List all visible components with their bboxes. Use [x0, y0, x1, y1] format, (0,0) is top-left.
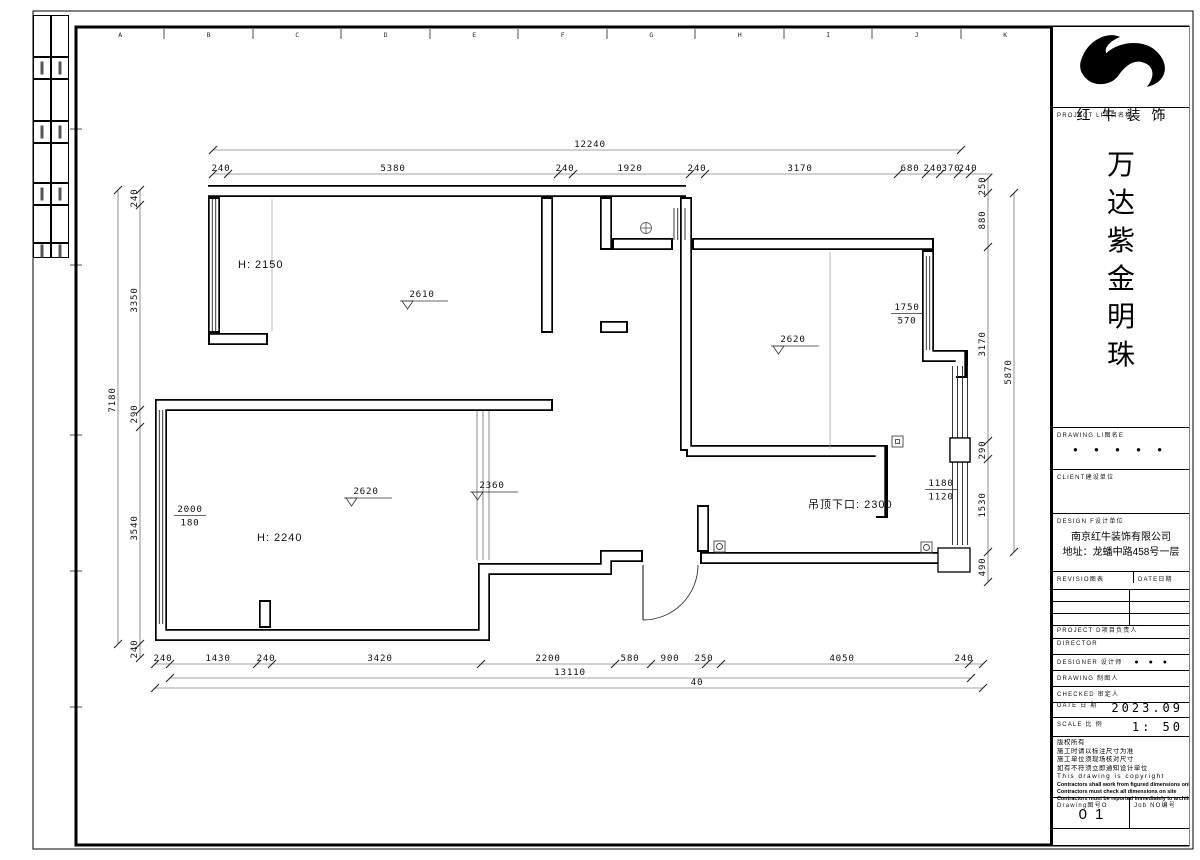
drawing-list-dots: ● ● ● ● ●	[1053, 445, 1189, 454]
elevation-triangle-icon	[346, 498, 357, 506]
elevation-value: 2620	[353, 486, 378, 497]
dim-label: 240	[924, 163, 943, 174]
designer-row: DESIGNER 设计师 ● ● ●	[1053, 655, 1189, 671]
dim-label: 2200	[535, 653, 560, 664]
project-label: PROJECT LI项目名称	[1053, 108, 1189, 119]
dim-label: 3350	[129, 287, 140, 312]
director-row: DIRECTOR	[1053, 639, 1189, 655]
dim-label: 240	[129, 189, 140, 208]
dim-label: 240	[955, 653, 974, 664]
dim-label: 240	[129, 640, 140, 659]
design-firm-section: DESIGN F设计单位 南京红牛装饰有限公司 地址：龙蟠中路458号一层	[1053, 514, 1189, 572]
plan-annotations: 1224024053802401920240317068024037024071…	[107, 31, 1018, 692]
ceiling-lamp-icon	[641, 223, 652, 234]
design-firm-address: 地址：龙蟠中路458号一层	[1053, 545, 1189, 560]
dim-label: 240	[212, 163, 231, 174]
dim-label: 5380	[380, 163, 405, 174]
elevation-triangle-icon	[402, 301, 413, 309]
elevation-triangle-icon	[472, 492, 483, 500]
dim-label: 240	[154, 653, 173, 664]
scale-value: 1: 50	[1132, 720, 1183, 734]
elevation-value: 2620	[780, 334, 805, 345]
border-letter: J	[915, 31, 919, 39]
project-director-row: PROJECT D项目负责人	[1053, 623, 1189, 639]
border-letter: E	[472, 31, 476, 39]
border-letter: F	[561, 31, 565, 39]
dim-label: 250	[977, 177, 988, 196]
client-section: CLIENT建设单位	[1053, 470, 1189, 514]
drawing-by-row: DRAWING 制图人	[1053, 671, 1189, 687]
job-no-label: Job NO编号	[1130, 798, 1189, 809]
room-label: H: 2150	[238, 259, 284, 271]
dim-label: 3170	[787, 163, 812, 174]
sheet-borders	[33, 11, 1193, 849]
border-letter: C	[295, 31, 299, 39]
border-letter: D	[384, 31, 388, 39]
wall-corner-block	[938, 548, 970, 572]
drawing-number-section: Drawing图号O 01 Job NO编号	[1053, 798, 1189, 829]
border-letter: G	[649, 31, 653, 39]
border-letter: I	[826, 31, 830, 39]
drawing-no-value: 01	[1053, 806, 1129, 823]
dim-label: 880	[977, 211, 988, 230]
logo-section: 红牛装饰	[1053, 27, 1189, 108]
project-title-section: 万 达 紫 金 明 珠	[1053, 128, 1189, 428]
border-letter: H	[738, 31, 742, 39]
title-block: 红牛装饰 PROJECT LI项目名称 万 达 紫 金 明 珠 DRAWING …	[1050, 27, 1189, 845]
dim-label: 240	[556, 163, 575, 174]
dim-label: 490	[977, 558, 988, 577]
dim-label: 13110	[554, 667, 586, 678]
dim-label: 3540	[129, 515, 140, 540]
border-letter: K	[1003, 31, 1007, 39]
drawing-list-section: DRAWING LI图名E ● ● ● ● ●	[1053, 428, 1189, 470]
dim-label: 3170	[977, 331, 988, 356]
dim-label: 5870	[1003, 359, 1014, 384]
dim-label: 680	[901, 163, 920, 174]
revision-label: REVISIO图表	[1053, 572, 1134, 583]
window-mullion-block-top	[950, 438, 970, 462]
floor-plan-canvas: 1224024053802401920240317068024037024071…	[0, 0, 1200, 860]
scale-row: SCALE 比 例 1: 50	[1053, 717, 1189, 736]
red-bull-logo-icon	[1067, 30, 1187, 88]
elevation-value: 2610	[409, 289, 434, 300]
stacked-dim-bottom: 180	[181, 518, 200, 529]
revision-date-label: DATE日期	[1134, 572, 1173, 583]
dim-label: 250	[695, 653, 714, 664]
dim-label: 900	[661, 653, 680, 664]
staff-section: PROJECT D项目负责人 DIRECTOR DESIGNER 设计师 ● ●…	[1053, 623, 1189, 698]
dim-label: 7180	[107, 387, 118, 412]
room-label: 吊顶下口: 2300	[808, 498, 893, 511]
stacked-dim-top: 1180	[928, 478, 953, 489]
dim-label: 240	[688, 163, 707, 174]
room-label: H: 2240	[257, 532, 303, 544]
drawing-sheet: 1224024053802401920240317068024037024071…	[0, 0, 1200, 860]
stacked-dim-top: 2000	[177, 504, 202, 515]
project-label-row: PROJECT LI项目名称	[1053, 108, 1189, 128]
dim-label: 4050	[829, 653, 854, 664]
door-swing	[643, 565, 698, 620]
dim-label: 40	[691, 677, 704, 688]
date-row: DATE 日 期 2023.09	[1053, 698, 1189, 717]
revision-rows	[1053, 590, 1189, 623]
dim-label: 290	[129, 405, 140, 424]
dim-label: 1530	[977, 492, 988, 517]
stacked-dim-top: 1750	[894, 302, 919, 313]
border-ruler-ticks	[70, 29, 961, 707]
project-title: 万 达 紫 金 明 珠	[1053, 146, 1189, 374]
stacked-dim-bottom: 570	[898, 316, 917, 327]
border-letter: A	[118, 31, 122, 39]
design-firm-name: 南京红牛装饰有限公司	[1053, 530, 1189, 545]
fold-strip	[33, 15, 69, 260]
dim-label: 240	[959, 163, 978, 174]
dim-label: 580	[621, 653, 640, 664]
border-letter: B	[207, 31, 211, 39]
notes-section: 版权所有 施工时请以标注尺寸为准 施工单位须现场核对尺寸 如有不符须立即通知设计…	[1053, 736, 1189, 798]
revision-header: REVISIO图表 DATE日期	[1053, 572, 1189, 590]
design-firm-label: DESIGN F设计单位	[1053, 514, 1189, 525]
dim-label: 1920	[617, 163, 642, 174]
dim-label: 240	[257, 653, 276, 664]
dim-label: 3420	[367, 653, 392, 664]
stacked-dim-bottom: 1120	[928, 492, 953, 503]
drawing-list-label: DRAWING LI图名E	[1053, 428, 1189, 439]
dim-label: 290	[977, 441, 988, 460]
dim-label: 1430	[205, 653, 230, 664]
dim-label: 12240	[574, 139, 606, 150]
date-value: 2023.09	[1111, 701, 1183, 715]
client-label: CLIENT建设单位	[1053, 470, 1189, 481]
elevation-triangle-icon	[773, 346, 784, 354]
elevation-value: 2360	[479, 480, 504, 491]
